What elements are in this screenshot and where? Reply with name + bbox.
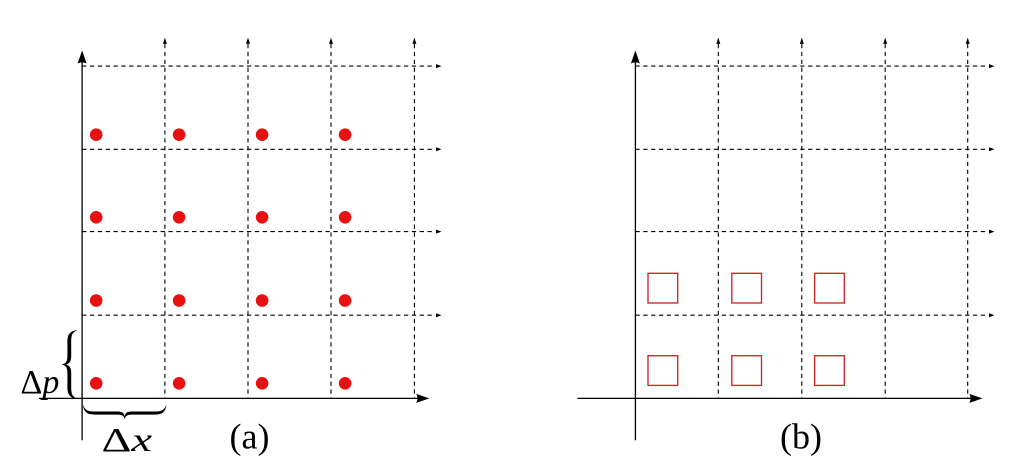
svg-text:Δp: Δp [21,364,60,401]
svg-text:Δx: Δx [102,422,153,459]
svg-text:(b): (b) [780,417,822,457]
svg-text:(a): (a) [230,417,270,457]
